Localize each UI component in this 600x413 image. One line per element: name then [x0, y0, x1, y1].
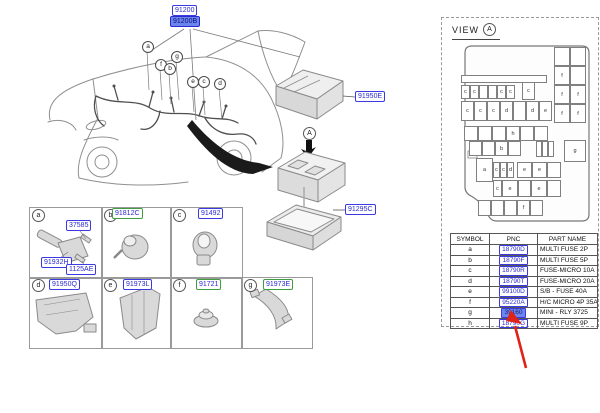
fuse-cell-c: c: [500, 162, 507, 178]
fuse-cell-c: c: [506, 85, 515, 99]
view-a-marker: A: [303, 127, 316, 140]
pnc-link[interactable]: 18790R: [499, 266, 528, 276]
fuse-cell-e: e: [502, 180, 518, 197]
fuse-cell: [479, 85, 488, 99]
table-row[interactable]: a 18790D MULTI FUSE 2P: [451, 245, 598, 256]
fuse-cell-c: c: [493, 162, 500, 178]
col-symbol: SYMBOL: [451, 234, 490, 245]
fuse-cell-a: a: [476, 158, 493, 182]
pnc-link[interactable]: 99100D: [499, 287, 528, 297]
fuse-cell-f: f: [554, 85, 570, 104]
fuse-cell-f: f: [570, 104, 586, 123]
fuse-cell: [491, 200, 504, 216]
part-label-91950q[interactable]: 91950Q: [49, 279, 80, 290]
fuse-cell-e: e: [531, 180, 547, 197]
fuse-cell: [547, 162, 561, 178]
symbol-cell: e: [451, 287, 490, 298]
fuse-cell-c: c: [470, 85, 479, 99]
symbol-cell: b: [451, 255, 490, 266]
part-name-cell: H/C MICRO 4P 35A: [538, 297, 598, 308]
part-name-cell: FUSE-MICRO 20A: [538, 276, 598, 287]
fuse-cell: [492, 126, 506, 141]
part-name-cell: MULTI FUSE 9P: [538, 318, 598, 329]
symbol-cell: a: [451, 245, 490, 256]
pnc-link[interactable]: 18790D: [499, 245, 528, 255]
fuse-cell: [520, 126, 534, 141]
callout-b: b: [164, 63, 176, 75]
grid-letter-f: f: [173, 279, 186, 292]
fuse-cell-c: c: [493, 180, 502, 197]
fuse-cell: [504, 200, 517, 216]
pnc-link[interactable]: 18790F: [499, 256, 527, 266]
symbol-cell: g: [451, 308, 490, 319]
fuse-cell: [534, 126, 548, 141]
symbol-cell: d: [451, 276, 490, 287]
fuse-cell: [478, 200, 491, 216]
fuse-cell-c: c: [461, 101, 474, 121]
view-label: VIEW: [452, 25, 479, 35]
fusebox-map: fffffccccccccddehbgaccdeeceef: [454, 45, 591, 226]
part-label-91492[interactable]: 91492: [198, 208, 223, 219]
fuse-cell: [530, 200, 543, 216]
parts-catalog-page: 91200 91200B 91950E 91295C A a f b g e c…: [0, 0, 600, 413]
part-label-91973e[interactable]: 91973E: [263, 279, 293, 290]
part-label-91200[interactable]: 91200: [172, 5, 197, 16]
symbol-table-header: SYMBOL PNC PART NAME: [451, 234, 598, 245]
fuse-cell: [478, 126, 492, 141]
grid-letter-a: a: [32, 209, 45, 222]
part-label-91721[interactable]: 91721: [196, 279, 221, 290]
fuse-cell: [547, 180, 561, 197]
fuse-cell-f: f: [554, 104, 570, 123]
part-label-1125ae[interactable]: 1125AE: [66, 264, 96, 275]
part-name-cell: S/B - FUSE 40A: [538, 287, 598, 298]
fuse-cell-d: d: [507, 162, 514, 178]
fusebox-upper-cover-illustration: [276, 70, 355, 119]
callout-d: d: [214, 78, 226, 90]
grid-letter-d: d: [32, 279, 45, 292]
grid-letter-g: g: [244, 279, 257, 292]
callout-a: a: [142, 41, 154, 53]
fuse-cell: [570, 47, 586, 66]
part-name-cell: MULTI FUSE 2P: [538, 245, 598, 256]
view-a-title-marker: A: [483, 23, 496, 36]
table-row[interactable]: b 18790F MULTI FUSE 5P: [451, 255, 598, 266]
table-row[interactable]: e 99100D S/B - FUSE 40A: [451, 287, 598, 298]
view-a-panel: VIEW A fffffccccccccddehbgaccdeeceef SYM…: [441, 17, 599, 327]
table-row[interactable]: d 18790T FUSE-MICRO 20A: [451, 276, 598, 287]
part-label-91200b[interactable]: 91200B: [170, 16, 200, 27]
part-label-91295c[interactable]: 91295C: [345, 204, 376, 215]
symbol-cell: f: [451, 297, 490, 308]
part-name-cell: MULTI FUSE 5P: [538, 255, 598, 266]
fuse-cell-e: e: [532, 162, 547, 178]
fuse-cell: [508, 141, 521, 156]
fuse-cell-c: c: [461, 85, 470, 99]
fuse-cell: [513, 101, 526, 121]
fuse-cell-g: g: [564, 140, 586, 162]
fuse-cell-c: c: [487, 101, 500, 121]
fuse-cell: [488, 85, 497, 99]
callout-g: g: [171, 51, 183, 63]
fuse-cell: [554, 47, 570, 66]
fuse-cell-c: c: [497, 85, 506, 99]
symbol-cell: h: [451, 318, 490, 329]
fuse-cell-d: d: [500, 101, 513, 121]
callout-c: c: [198, 76, 210, 88]
fuse-cell: [518, 180, 531, 197]
fuse-cell-c: c: [522, 82, 535, 100]
part-name-cell: MINI - RLY 3725: [538, 308, 598, 319]
part-label-37585[interactable]: 37585: [66, 220, 91, 231]
red-pointer-arrow: [495, 300, 540, 375]
fuse-cell-e: e: [539, 101, 552, 121]
fuse-cell: [464, 126, 478, 141]
part-label-91812c[interactable]: 91812C: [112, 208, 143, 219]
fuse-cell: [469, 141, 482, 156]
grid-letter-c: c: [173, 209, 186, 222]
fuse-cell: [482, 141, 495, 156]
fuse-cell-e: e: [517, 162, 532, 178]
grid-letter-e: e: [104, 279, 117, 292]
wiring-harness-illustration: [94, 85, 256, 145]
fusebox-body-illustration: [278, 152, 345, 202]
part-label-91950e[interactable]: 91950E: [355, 91, 385, 102]
fuse-cell: [548, 141, 554, 157]
fuse-cell-f: f: [517, 200, 530, 216]
col-pnc: PNC: [490, 234, 538, 245]
part-label-91973l[interactable]: 91973L: [123, 279, 152, 290]
fuse-cell: [570, 66, 586, 85]
part-name-cell: FUSE-MICRO 10A: [538, 266, 598, 277]
fuse-cell-f: f: [554, 66, 570, 85]
fuse-cell-c: c: [474, 101, 487, 121]
fuse-cell-f: f: [570, 85, 586, 104]
view-a-title: VIEW A: [452, 23, 500, 40]
fuse-cell-h: h: [506, 126, 520, 141]
fuse-cell-b: b: [495, 141, 508, 156]
fuse-cell-d: d: [526, 101, 539, 121]
col-part-name: PART NAME: [538, 234, 598, 245]
pnc-link[interactable]: 18790T: [499, 277, 527, 287]
symbol-cell: c: [451, 266, 490, 277]
table-row[interactable]: c 18790R FUSE-MICRO 10A: [451, 266, 598, 277]
